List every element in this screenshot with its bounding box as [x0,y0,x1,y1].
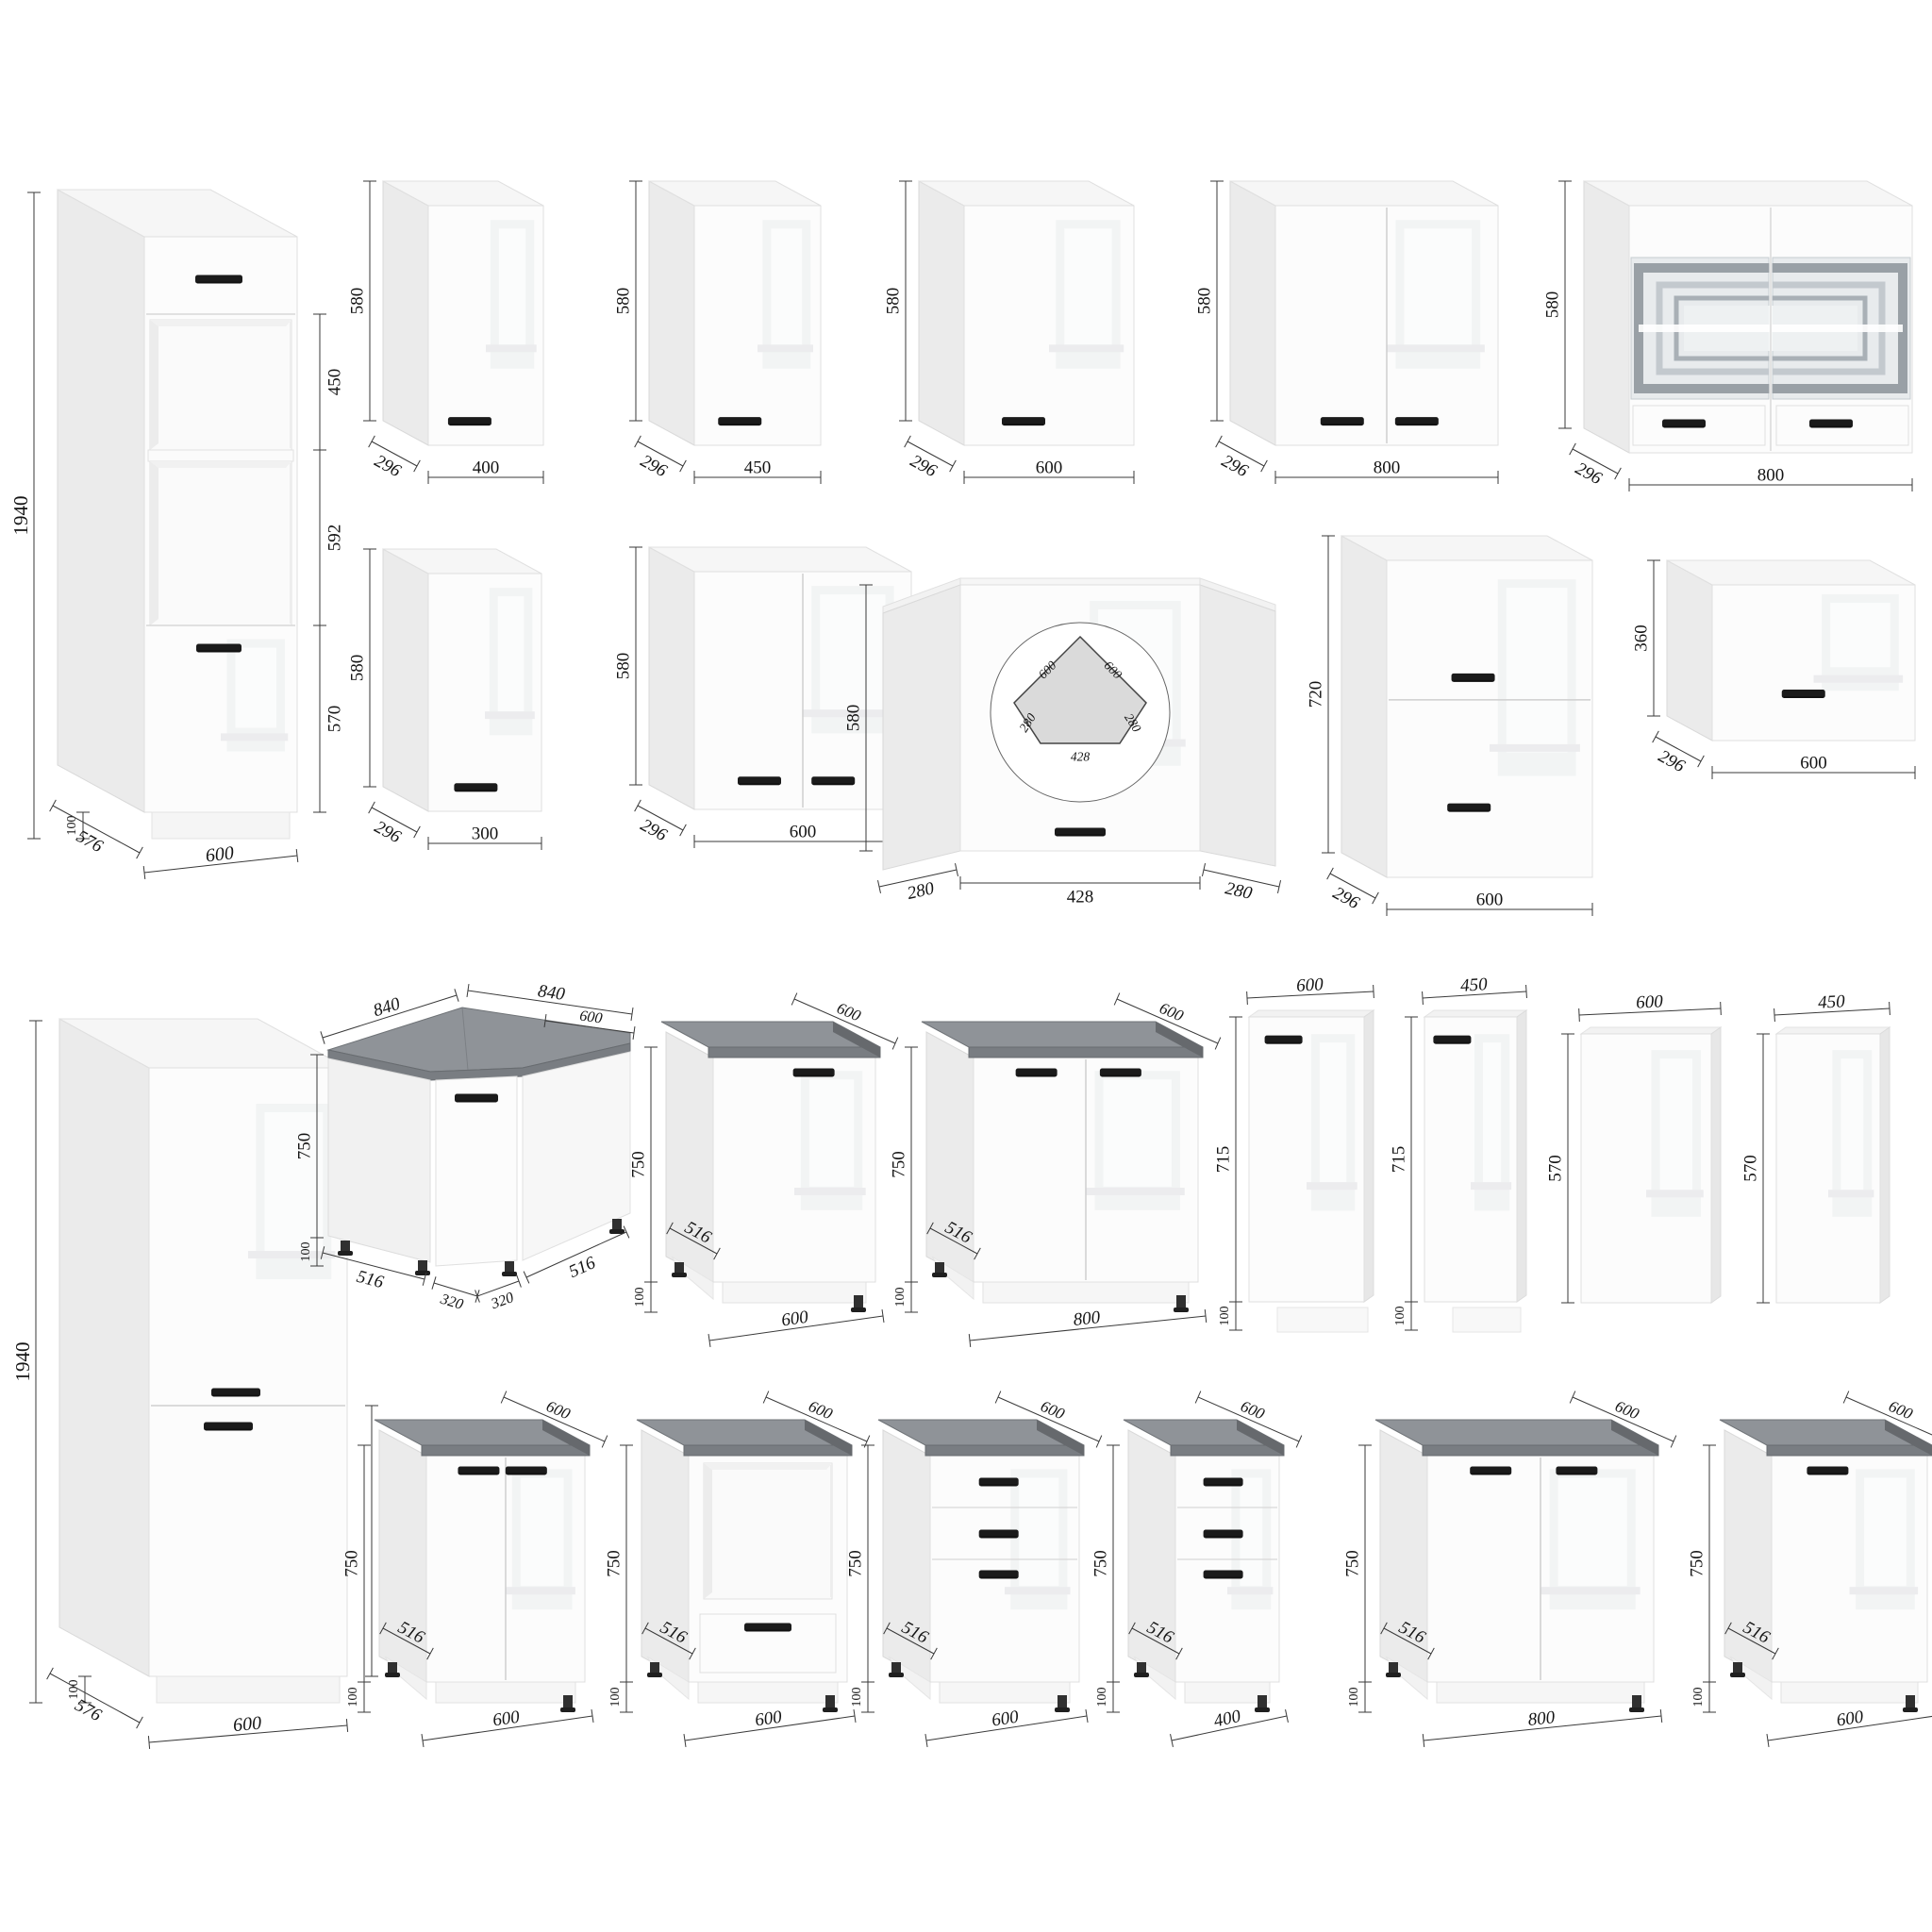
door-handle [1265,1036,1303,1044]
dim-label: 600 [578,1008,603,1026]
door-handle [979,1530,1019,1539]
dim-label: 1940 [9,496,32,536]
door-handle [1447,804,1491,812]
dim-720: 720 [1306,536,1335,853]
dim-label: 600 [834,999,863,1025]
door-handle [1433,1036,1471,1044]
dim-label: 450 [1818,991,1846,1013]
dim-450: 450 [694,458,821,484]
reflection [1049,220,1124,368]
dim-label: 580 [843,705,863,732]
door-handle [1782,690,1825,698]
dim-label: 100 [1347,1688,1361,1707]
dim-715: 715 [1389,1017,1418,1302]
cabinet-front-600-715: 600715100 [1209,983,1389,1379]
dim-label: 100 [1095,1688,1109,1707]
dim-label: 296 [1655,746,1689,776]
cabinet-base-corner: 750100840840600516320320516 [292,979,651,1375]
adjustable-foot [415,1260,430,1275]
door-handle [196,644,241,653]
cabinet-base-800: 750100600516800 [891,992,1241,1396]
dim-label: 800 [1073,1307,1102,1330]
dim-label: 360 [1631,625,1651,652]
dim-label: 570 [1740,1155,1760,1182]
dim-100: 100 [1347,1682,1372,1712]
cabinet-wall-400: 580400296 [332,162,598,540]
dim-label: 600 [790,822,817,841]
dim-296: 296 [635,436,687,482]
reflection [1828,1050,1874,1217]
dim-600: 600 [708,1307,884,1347]
reflection [1490,579,1580,775]
dim-label: 320 [489,1290,516,1313]
dim-570: 570 [1545,1034,1574,1303]
dim-600: 600 [148,1713,347,1749]
reflection [1646,1050,1704,1217]
dim-600: 600 [925,1707,1088,1746]
door-handle [1100,1069,1141,1077]
cabinet-panel-600-570: 600570 [1536,996,1734,1364]
door-handle [1395,417,1439,425]
dim-600: 600 [964,458,1134,484]
dim-1940: 1940 [11,1021,42,1703]
dim-800: 800 [1629,465,1912,491]
cabinet-base-400-drawers: 750100600516400 [1094,1385,1330,1875]
dim-800: 800 [969,1307,1206,1347]
dim-label: 296 [907,451,941,481]
dim-100: 100 [850,1682,874,1712]
dim-580: 580 [613,181,642,421]
dim-100: 100 [346,1682,371,1712]
dim-300: 300 [428,824,541,850]
dim-label: 600 [1476,890,1504,909]
dim-450: 450 [1423,974,1527,1005]
cabinet-wall-800: 580800296 [1179,162,1542,540]
door-handle [1204,1530,1243,1539]
reflection [1850,1469,1919,1609]
dim-label: 600 [1238,1397,1267,1424]
plan-dim-label: 428 [1071,750,1091,764]
door-handle [1470,1467,1511,1475]
reflection [506,1469,575,1609]
cabinet-wall-corner: 600600280280428580280428280 [841,519,1294,924]
dim-100: 100 [1095,1682,1120,1712]
dim-label: 428 [1067,887,1094,907]
dim-580: 580 [613,547,642,785]
adjustable-foot [502,1261,517,1276]
dim-280: 280 [877,863,958,904]
door-handle [1807,1467,1848,1475]
cabinet-base-600: 750100600516600 [630,992,906,1396]
dim-800: 800 [1423,1707,1661,1747]
dim-label: 600 [491,1707,522,1731]
plan-view-inset: 600600280280428 [991,623,1170,802]
reflection [794,1071,866,1210]
open-niche [704,1463,832,1599]
dim-label: 800 [1757,465,1785,485]
dim-100: 100 [1691,1682,1716,1712]
cabinet-base-800-double: 750100600516800 [1344,1385,1679,1875]
dim-280: 280 [1202,863,1280,904]
dim-label: 600 [543,1397,573,1424]
dim-600: 600 [684,1707,856,1747]
dim-1940: 1940 [9,192,41,839]
door-handle [1002,417,1045,425]
dim-320: 320 [475,1274,522,1312]
dim-580: 580 [883,181,912,421]
dim-label: 750 [1687,1550,1707,1577]
dim-576: 576 [47,1668,143,1728]
dim-label: 600 [754,1707,784,1731]
door-handle [204,1423,253,1431]
door-handle [738,776,781,785]
reflection [758,220,813,368]
door-handle [1055,828,1106,837]
dim-label: 100 [850,1688,864,1707]
cabinet-wall-300: 580300296 [332,528,598,910]
dim-label: 750 [628,1151,648,1178]
door-handle [1452,674,1495,682]
dim-label: 1940 [11,1342,34,1382]
dim-label: 516 [355,1267,386,1293]
dim-580: 580 [1194,181,1224,421]
dim-320: 320 [432,1276,479,1313]
dim-label: 750 [294,1133,314,1160]
dim-label: 296 [637,815,671,845]
dim-296: 296 [369,802,421,848]
door-handle [1556,1467,1597,1475]
door-handle [979,1571,1019,1579]
reflection [1227,1469,1273,1609]
dim-label: 400 [1212,1707,1243,1732]
dim-label: 840 [537,981,567,1005]
dim-label: 800 [1527,1707,1557,1730]
door-handle [458,1467,499,1475]
cabinet-base-600-oven: 750100600516600 [604,1385,887,1875]
dim-label: 750 [845,1550,865,1577]
dim-600: 600 [1579,991,1722,1022]
dim-296: 296 [1653,731,1705,777]
reflection [1541,1469,1641,1609]
dim-750: 750 [1687,1445,1716,1682]
dim-580: 580 [347,181,376,421]
dim-label: 600 [232,1713,262,1736]
reflection [1387,220,1485,368]
dim-label: 296 [371,451,405,481]
cabinet-wall-600-720: 720600296 [1294,519,1620,955]
dim-450: 450 [1774,991,1890,1022]
dim-296: 296 [905,436,957,482]
dim-800: 800 [1275,458,1498,484]
dim-576: 576 [50,800,143,858]
dim-label: 600 [1157,999,1186,1025]
dim-label: 715 [1389,1146,1408,1174]
dim-400: 400 [428,458,543,484]
door-handle [744,1624,791,1632]
door-handle [718,417,761,425]
dim-400: 400 [1171,1707,1289,1747]
cabinet-tall-oven-600: 1940100576600450592570 [8,138,347,968]
dim-label: 100 [299,1242,313,1262]
dim-label: 296 [1329,883,1363,913]
dim-750: 750 [1091,1445,1120,1682]
dim-label: 100 [346,1688,360,1707]
dim-296: 296 [1327,868,1379,914]
reflection [1005,1469,1071,1609]
dim-label: 750 [604,1550,624,1577]
dim-label: 296 [637,451,671,481]
dim-296: 296 [369,436,421,482]
dim-label: 580 [613,653,633,680]
dim-label: 720 [1306,681,1325,708]
cabinet-base-600-drawers: 750100600516600 [849,1385,1118,1875]
dim-label: 580 [347,288,367,315]
door-handle [211,1389,260,1397]
door-handle [1016,1069,1058,1077]
dim-750: 750 [604,1445,633,1682]
cabinet-front-450-715: 450715100 [1385,983,1540,1379]
dim-label: 750 [1091,1550,1110,1577]
dim-label: 450 [1459,974,1488,996]
reflection [1471,1034,1511,1210]
dim-label: 580 [883,288,903,315]
dim-296: 296 [1570,443,1622,490]
dim-580: 580 [1542,181,1572,428]
dim-360: 360 [1631,560,1660,716]
dim-750: 750 [1342,1445,1372,1682]
dim-label: 840 [371,993,403,1021]
open-niche [150,461,291,625]
kitchen-cabinet-dimension-catalog: 1940100576600450592570580400296580450296… [0,0,1932,1932]
dim-100: 100 [299,1238,324,1266]
dim-label: 100 [608,1688,623,1707]
dim-label: 100 [1218,1307,1232,1326]
dim-label: 750 [341,1550,361,1577]
dim-label: 296 [1218,451,1252,481]
dim-label: 280 [906,878,937,904]
dim-label: 600 [1636,991,1664,1012]
dim-label: 280 [1224,878,1255,904]
door-handle [1204,1571,1243,1579]
dim-label: 750 [889,1151,908,1178]
door-handle [506,1467,547,1475]
dim-600: 600 [1387,890,1592,916]
cabinet-wall-600: 580600296 [868,162,1179,540]
door-handle [1204,1478,1243,1487]
dim-296: 296 [635,800,687,846]
door-handle [793,1069,835,1077]
dim-100: 100 [1218,1302,1242,1330]
dim-label: 580 [1194,288,1214,315]
dim-750: 750 [628,1047,658,1282]
dim-label: 400 [473,458,500,477]
dim-label: 600 [1612,1397,1641,1424]
reflection [485,588,535,735]
dim-label: 600 [806,1397,835,1424]
dim-label: 600 [1886,1397,1915,1424]
door-handle [448,417,491,425]
door-handle [979,1478,1019,1487]
dim-label: 600 [1800,753,1827,773]
cabinet-body [328,1008,630,1266]
dim-label: 300 [472,824,499,843]
dim-750: 750 [341,1445,371,1682]
dim-750: 750 [294,1055,324,1238]
door-handle [1809,420,1853,428]
reflection [486,220,537,368]
reflection [1086,1071,1185,1210]
dim-100: 100 [633,1282,658,1312]
dim-label: 570 [1545,1155,1565,1182]
dim-label: 100 [893,1288,908,1307]
dim-580: 580 [347,549,376,787]
dim-715: 715 [1213,1017,1242,1302]
dim-label: 600 [780,1307,810,1331]
dim-600: 600 [143,842,298,879]
dim-label: 750 [1342,1550,1362,1577]
dim-100: 100 [893,1282,918,1312]
reflection [221,640,288,752]
reflection [1307,1034,1357,1210]
dim-750: 750 [889,1047,918,1282]
dim-label: 580 [613,288,633,315]
dim-label: 600 [1296,974,1324,995]
dim-label: 296 [1572,458,1606,489]
dim-580: 580 [843,585,873,851]
adjustable-foot [338,1241,353,1256]
dim-428: 428 [960,876,1200,907]
dim-570: 570 [1740,1034,1770,1303]
dim-label: 320 [438,1291,465,1313]
dim-750: 750 [845,1445,874,1682]
dim-600: 600 [1767,1707,1932,1747]
cabinet-base-600-single: 750100600516600 [1689,1385,1929,1875]
dim-label: 580 [347,655,367,682]
dim-label: 450 [744,458,772,477]
dim-label: 600 [1835,1707,1865,1731]
door-handle [454,783,497,791]
dim-600: 600 [422,1707,593,1747]
door-handle [1321,417,1364,425]
dim-label: 800 [1374,458,1401,477]
cabinet-wall-800-glass: 580800296 [1542,162,1931,540]
dim-100: 100 [1393,1302,1418,1330]
open-niche [150,320,291,450]
door-handle [195,275,242,284]
dim-label: 100 [1691,1688,1706,1707]
dim-600: 600 [1247,974,1374,1005]
dim-label: 600 [205,842,235,866]
dim-label: 100 [633,1288,647,1307]
dim-label: 600 [1038,1397,1067,1424]
dim-label: 100 [1393,1307,1407,1326]
dim-label: 296 [371,817,405,847]
dim-label: 715 [1213,1146,1233,1174]
dim-label: 600 [1036,458,1063,477]
cabinet-panel-450-570: 450570 [1731,996,1901,1364]
cabinet-wall-450: 580450296 [598,162,868,540]
cabinet-base-600-double: 750100600516600 [341,1385,625,1875]
dim-600: 600 [1712,753,1915,779]
dim-100: 100 [608,1682,633,1712]
door-handle [1662,420,1706,428]
reflection [1814,594,1904,691]
dim-296: 296 [1216,436,1268,482]
dim-label: 580 [1542,291,1562,319]
door-handle [455,1094,498,1103]
cabinet-wall-600-360: 360600296 [1620,540,1931,856]
dim-label: 600 [991,1707,1021,1730]
